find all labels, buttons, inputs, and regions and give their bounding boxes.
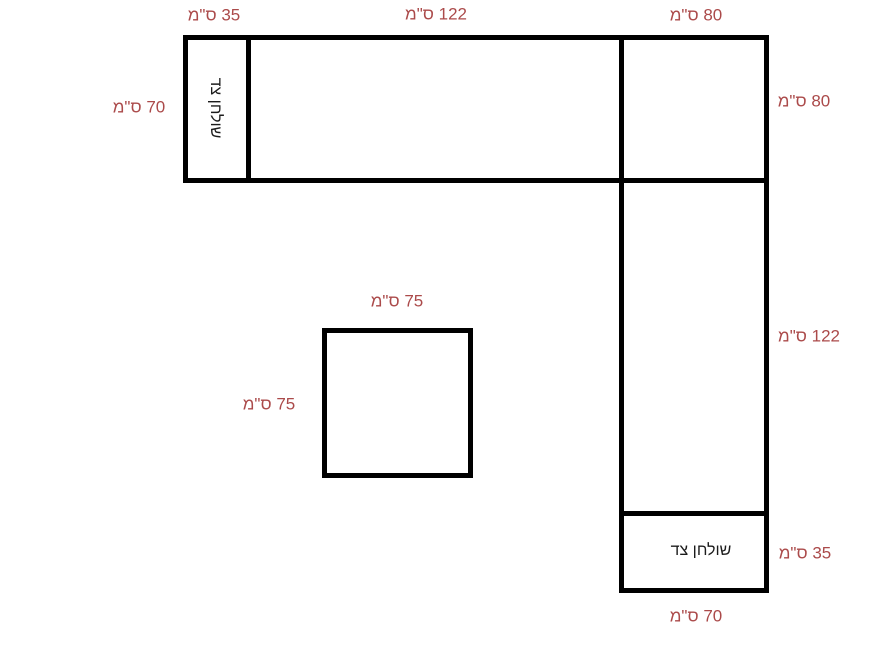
left-side-table-label: שולחן צד xyxy=(207,78,223,139)
dim-left-height: 70 ס"מ xyxy=(113,99,166,116)
dim-square-left-height: 75 ס"מ xyxy=(243,396,296,413)
dim-right-middle-height: 122 ס"מ xyxy=(778,328,840,345)
bottom-side-table-divider-line xyxy=(619,511,769,516)
dim-right-top-height: 80 ס"מ xyxy=(778,93,831,110)
center-square-outline xyxy=(322,328,473,478)
dim-right-bottom-height: 35 ס"מ xyxy=(779,545,832,562)
right-column-outline xyxy=(619,35,769,593)
dim-top-middle-width: 122 ס"מ xyxy=(405,6,467,23)
left-side-table-divider-line xyxy=(246,35,251,183)
dim-top-left-width: 35 ס"מ xyxy=(188,7,241,24)
dim-bottom-width: 70 ס"מ xyxy=(670,608,723,625)
bottom-side-table-label: שולחן צד xyxy=(671,543,732,559)
furniture-layout-diagram: 35 ס"מ 122 ס"מ 80 ס"מ 70 ס"מ 80 ס"מ 122 … xyxy=(0,0,891,668)
dim-top-right-width: 80 ס"מ xyxy=(670,7,723,24)
dim-square-top-width: 75 ס"מ xyxy=(371,293,424,310)
